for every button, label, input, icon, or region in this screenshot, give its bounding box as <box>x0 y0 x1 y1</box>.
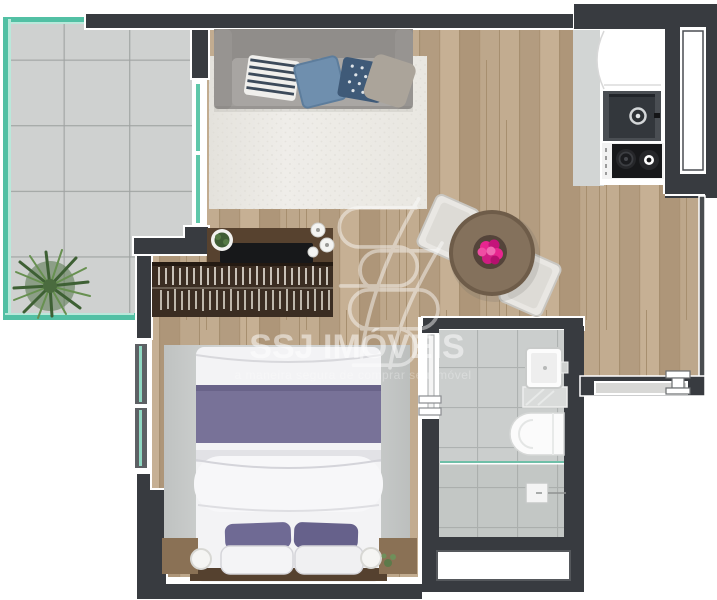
svg-text:a maneira segura de comprar se: a maneira segura de comprar seu imóvel <box>234 368 471 382</box>
svg-text:SSJ IMÓVEIS: SSJ IMÓVEIS <box>249 328 464 366</box>
